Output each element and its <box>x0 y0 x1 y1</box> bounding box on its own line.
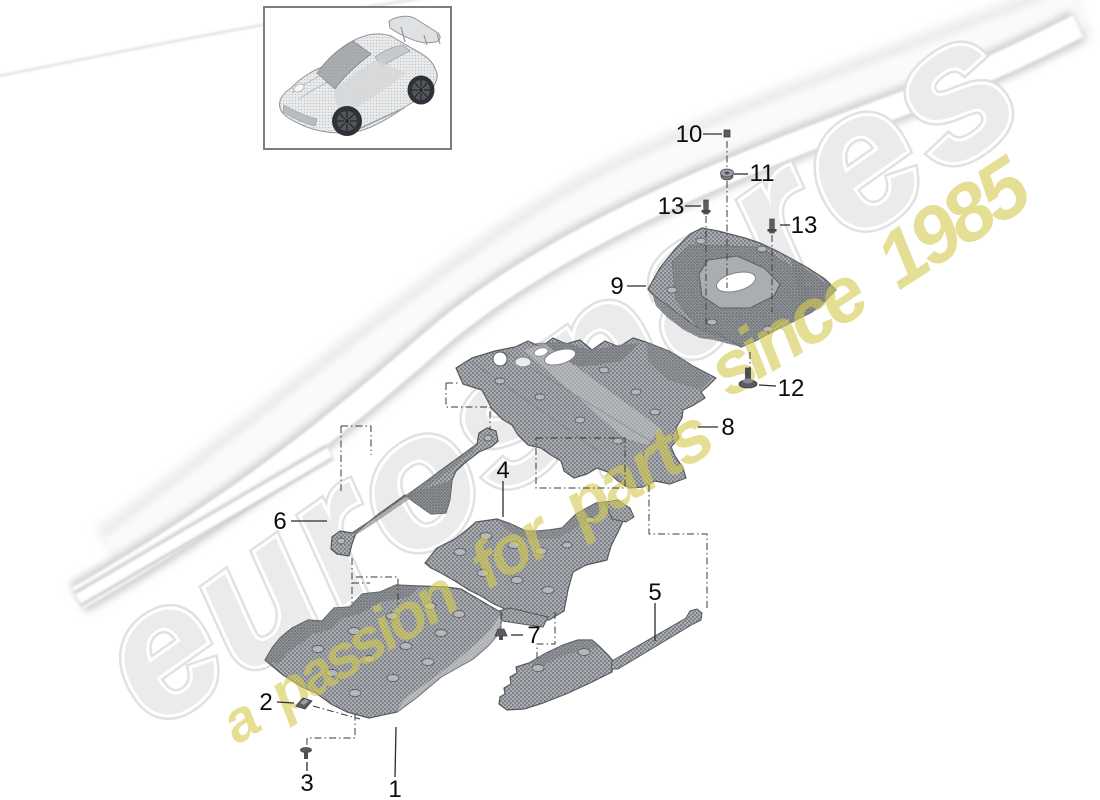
svg-text:13: 13 <box>791 212 818 239</box>
svg-text:11: 11 <box>750 160 775 187</box>
svg-text:12: 12 <box>778 375 805 402</box>
svg-text:7: 7 <box>527 622 540 649</box>
svg-text:1: 1 <box>388 776 401 800</box>
svg-text:9: 9 <box>610 273 623 300</box>
svg-text:6: 6 <box>273 508 286 535</box>
svg-text:5: 5 <box>648 579 661 606</box>
svg-text:2: 2 <box>259 689 272 716</box>
svg-text:3: 3 <box>300 770 313 797</box>
svg-text:8: 8 <box>721 414 734 441</box>
svg-text:10: 10 <box>676 121 703 148</box>
svg-text:4: 4 <box>496 457 509 484</box>
svg-text:13: 13 <box>658 193 685 220</box>
